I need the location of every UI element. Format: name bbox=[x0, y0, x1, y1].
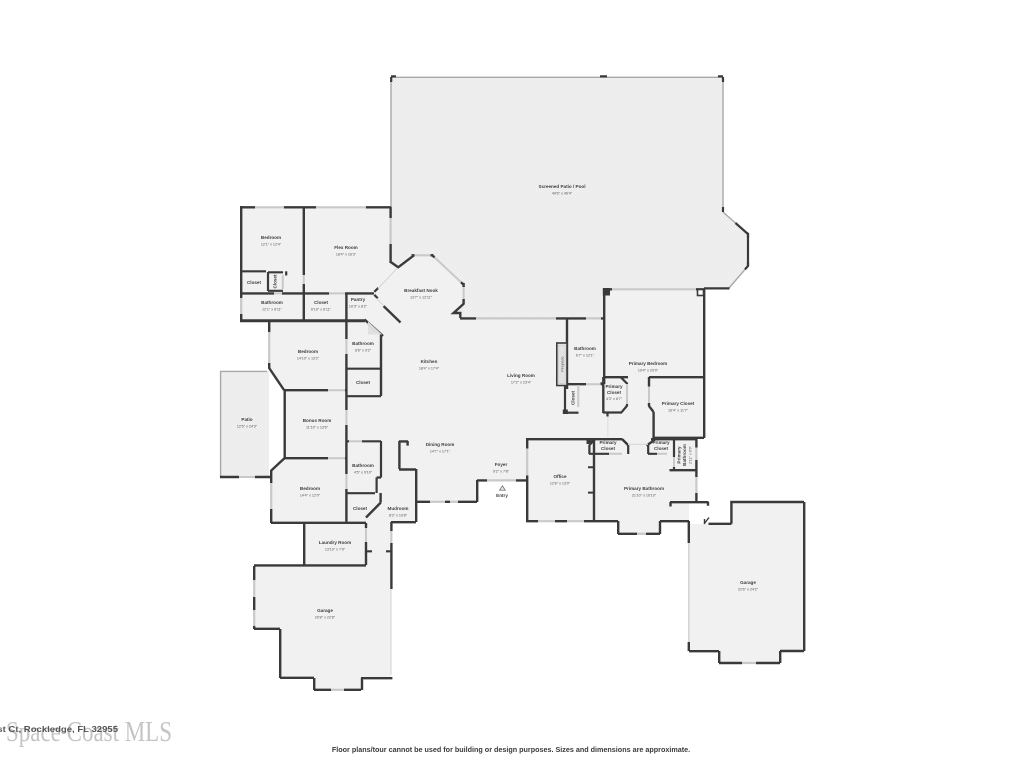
svg-text:Entry: Entry bbox=[496, 493, 508, 498]
svg-text:22'6" x 24'2": 22'6" x 24'2" bbox=[738, 588, 759, 592]
svg-text:Screened Patio / Pool: Screened Patio / Pool bbox=[539, 184, 586, 189]
svg-text:Garage: Garage bbox=[317, 608, 333, 613]
svg-text:Primary: Primary bbox=[652, 440, 670, 445]
svg-text:Living Room: Living Room bbox=[507, 373, 535, 378]
svg-text:6'7" x 12'1": 6'7" x 12'1" bbox=[576, 354, 595, 358]
svg-text:16'4" x 11'7": 16'4" x 11'7" bbox=[668, 409, 689, 413]
svg-text:Closet: Closet bbox=[571, 391, 576, 406]
svg-text:13'10" x 7'9": 13'10" x 7'9" bbox=[325, 548, 346, 552]
svg-text:13'7" x 12'11": 13'7" x 12'11" bbox=[410, 296, 433, 300]
svg-text:Primary: Primary bbox=[599, 440, 617, 445]
svg-text:est Ct, Rockledge, FL 32955: est Ct, Rockledge, FL 32955 bbox=[0, 724, 118, 734]
svg-text:20'8" x 22'8": 20'8" x 22'8" bbox=[315, 616, 336, 620]
svg-text:Kitchen: Kitchen bbox=[421, 359, 438, 364]
svg-text:10'3" x 8'2": 10'3" x 8'2" bbox=[349, 305, 368, 309]
svg-text:Closet: Closet bbox=[273, 274, 278, 289]
svg-text:Bedroom: Bedroom bbox=[298, 349, 318, 354]
svg-text:Primary Closet: Primary Closet bbox=[662, 401, 695, 406]
svg-text:Closet: Closet bbox=[654, 446, 669, 451]
svg-text:8'6" x 9'2": 8'6" x 9'2" bbox=[355, 349, 372, 353]
svg-text:Bathroom: Bathroom bbox=[352, 341, 374, 346]
svg-text:Flex Room: Flex Room bbox=[334, 245, 357, 250]
svg-text:14'4" x 12'0": 14'4" x 12'0" bbox=[300, 494, 321, 498]
svg-text:Dining Room: Dining Room bbox=[426, 442, 455, 447]
svg-text:12'5" x 24'3": 12'5" x 24'3" bbox=[237, 425, 258, 429]
svg-text:18'4" x 16'3": 18'4" x 16'3" bbox=[336, 253, 357, 257]
svg-text:2'11" x 6'9": 2'11" x 6'9" bbox=[689, 445, 693, 464]
svg-text:Bedroom: Bedroom bbox=[300, 486, 320, 491]
svg-text:Mudroom: Mudroom bbox=[388, 506, 409, 511]
svg-text:Breakfast Nook: Breakfast Nook bbox=[404, 288, 438, 293]
svg-text:Closet: Closet bbox=[353, 506, 368, 511]
svg-text:Floor plans/tour cannot be use: Floor plans/tour cannot be used for buil… bbox=[332, 745, 690, 754]
svg-text:Bathroom: Bathroom bbox=[682, 444, 687, 466]
svg-text:17'2" x 23'4": 17'2" x 23'4" bbox=[511, 381, 532, 385]
svg-text:Pantry: Pantry bbox=[351, 297, 366, 302]
svg-text:Patio: Patio bbox=[241, 417, 252, 422]
svg-text:4'5" x 9'10": 4'5" x 9'10" bbox=[354, 471, 373, 475]
svg-text:Closet: Closet bbox=[607, 390, 622, 395]
svg-text:Primary Bathroom: Primary Bathroom bbox=[624, 486, 664, 491]
svg-text:Closet: Closet bbox=[356, 380, 371, 385]
svg-text:Bonus Room: Bonus Room bbox=[303, 418, 332, 423]
svg-text:Fireplace: Fireplace bbox=[561, 356, 565, 371]
svg-text:Bathroom: Bathroom bbox=[574, 346, 596, 351]
svg-text:21'10" x 16'10": 21'10" x 16'10" bbox=[632, 494, 657, 498]
svg-text:Bedroom: Bedroom bbox=[261, 235, 281, 240]
svg-text:Closet: Closet bbox=[314, 300, 329, 305]
svg-text:Laundry Room: Laundry Room bbox=[319, 540, 351, 545]
svg-text:14'7" x 17'1": 14'7" x 17'1" bbox=[430, 450, 451, 454]
svg-text:12'8" x 13'0": 12'8" x 13'0" bbox=[550, 482, 571, 486]
svg-text:Closet: Closet bbox=[247, 280, 262, 285]
svg-text:Bathroom: Bathroom bbox=[261, 300, 283, 305]
svg-text:6'10" x 6'11": 6'10" x 6'11" bbox=[311, 308, 332, 312]
svg-text:12'1" x 12'4": 12'1" x 12'4" bbox=[261, 243, 282, 247]
svg-text:Primary: Primary bbox=[605, 384, 623, 389]
svg-text:12'1" x 6'11": 12'1" x 6'11" bbox=[262, 308, 283, 312]
svg-text:49'6" x 46'4": 49'6" x 46'4" bbox=[552, 192, 573, 196]
svg-text:19'4" x 20'0": 19'4" x 20'0" bbox=[638, 369, 659, 373]
svg-text:Bathroom: Bathroom bbox=[352, 463, 374, 468]
svg-text:9'2" x 7'8": 9'2" x 7'8" bbox=[493, 470, 510, 474]
svg-text:Closet: Closet bbox=[601, 446, 616, 451]
svg-text:18'4" x 17'4": 18'4" x 17'4" bbox=[419, 367, 440, 371]
svg-text:11'10" x 13'6": 11'10" x 13'6" bbox=[306, 426, 329, 430]
svg-text:Foyer: Foyer bbox=[495, 462, 508, 467]
svg-text:Garage: Garage bbox=[740, 580, 756, 585]
svg-text:Office: Office bbox=[553, 474, 566, 479]
svg-text:14'10" x 13'2": 14'10" x 13'2" bbox=[297, 357, 320, 361]
svg-text:Primary Bedroom: Primary Bedroom bbox=[629, 361, 668, 366]
svg-text:4'3" x 6'7": 4'3" x 6'7" bbox=[606, 397, 623, 401]
svg-text:Primary: Primary bbox=[677, 446, 682, 464]
svg-text:8'3" x 10'8": 8'3" x 10'8" bbox=[389, 514, 408, 518]
